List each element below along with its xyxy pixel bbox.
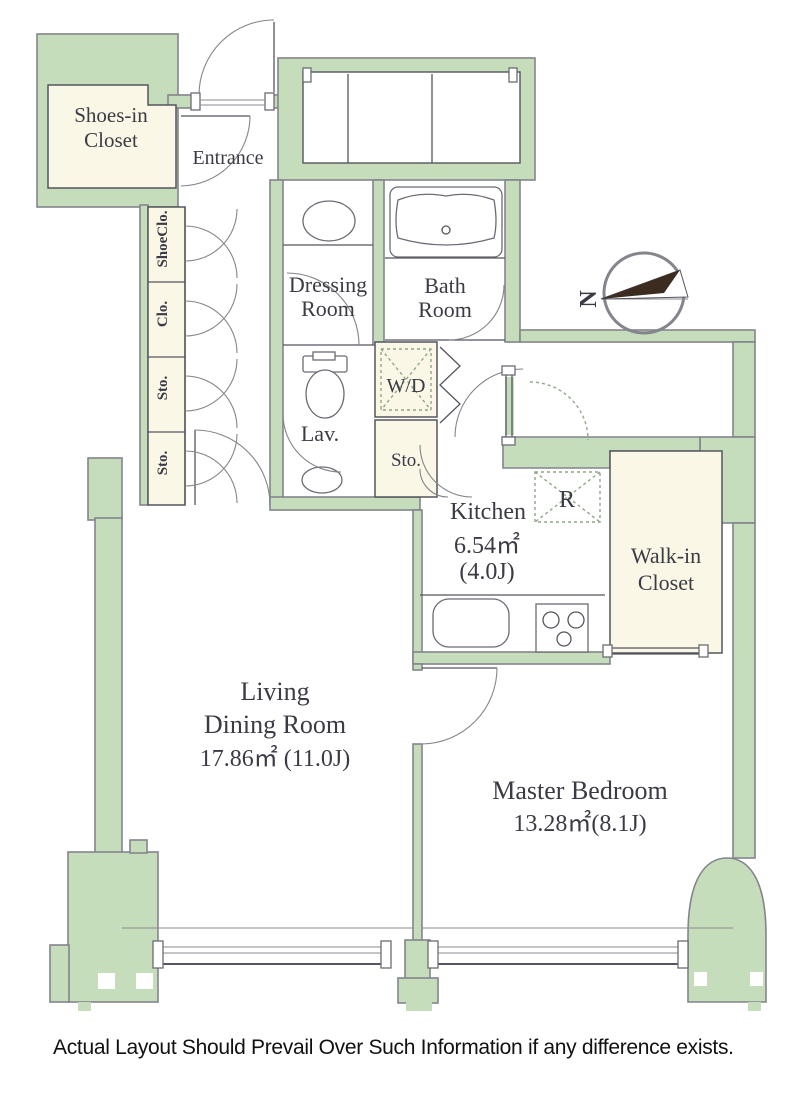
sto-lower-label: Sto. [155,450,171,475]
lav-basin [302,467,342,493]
shoes-closet-label-1: Shoes-in [74,103,148,127]
front-door-swing [199,20,274,95]
window-jamb-2 [381,941,391,968]
sliding-door-jamb-bottom [502,437,515,445]
closet-door-jamb-left [603,645,612,657]
clo-door-swings [185,284,237,353]
wall-ldr-left-corner [88,458,122,520]
hall-door-swing [195,430,270,505]
wall-ldr-top-band [270,497,420,510]
pillar-center-foot-stub [406,1002,432,1011]
pillar-left-foot-stub [78,1002,91,1011]
kitchen-label: Kitchen [450,499,526,525]
dressing-basin [303,201,355,241]
sto-upper-door-swings [185,359,237,428]
wall-kitchen-left [413,510,422,664]
refrigerator-label: R [559,487,575,513]
meter-box-outline [303,72,520,163]
master-corridor-door-swing [530,382,588,440]
pillar-left-notch-2 [136,973,153,989]
shoes-closet-label-2: Closet [84,128,138,152]
lav-label: Lav. [301,421,339,446]
bathtub-inner [396,194,496,245]
master-bedroom-label: Master Bedroom [492,776,667,805]
kitchen-stove [536,604,588,652]
walkin-label-2: Closet [638,570,694,595]
compass-north-label: N [576,290,602,308]
shoeclo-label: ShoeClo. [155,210,171,267]
meter-box-jamb-right [509,68,517,82]
wall-wetcore-left [270,180,283,505]
window-jamb-1 [153,941,163,968]
wall-bedroom-divider [413,744,422,945]
ldr-label-1: Living [240,677,309,706]
sto-hall-label: Sto. [391,450,421,471]
pillar-right-foot-stub [748,1002,761,1011]
sliding-door-jamb-top [502,366,515,375]
pillar-left-stem [130,840,147,853]
walkin-label-1: Walk-in [631,543,701,568]
wall-closet-column-left [140,205,148,505]
wd-bifold-door [440,347,460,423]
kitchen-area-sqm: 6.54㎡ [454,532,520,559]
clo-label: Clo. [155,301,171,328]
wall-dressing-bath-divider [373,180,384,345]
ldr-label-2: Dining Room [204,710,346,739]
wall-bath-right [505,180,520,342]
pillar-center-foot [398,978,438,1003]
floor-plan-page: N Shoes-in Closet Entrance ShoeClo. Clo.… [0,0,807,1108]
meter-box-jamb-left [303,68,311,82]
wall-right-upper [733,342,755,437]
disclaimer-text: Actual Layout Should Prevail Over Such I… [53,1036,793,1060]
toilet-bowl [306,370,344,418]
toilet-handle [313,352,335,360]
entrance-threshold [200,100,265,105]
floor-plan-drawing: N Shoes-in Closet Entrance ShoeClo. Clo.… [0,0,807,1108]
shoeclo-door-swings [185,209,237,278]
pillar-left-step [50,945,69,1002]
entrance-label: Entrance [192,147,263,169]
front-door-jamb-right [265,93,274,110]
sto-upper-label: Sto. [155,375,171,400]
master-bedroom-area: 13.28㎡(8.1J) [513,810,646,837]
bedroom-door-swing [422,668,497,744]
pillar-center-stem [405,940,430,982]
bath-label-2: Room [418,297,472,322]
meter-box [303,68,520,163]
compass: N [576,253,688,333]
bath-label-1: Bath [424,273,466,298]
ldr-area: 17.86㎡ (11.0J) [200,745,350,772]
wall-bedroom-divider-top [413,664,422,670]
pillar-right-notch-2 [750,972,763,986]
wd-label: W/D [387,375,426,397]
window-jamb-3 [428,941,438,968]
kitchen-area-jo: (4.0J) [459,559,514,585]
wall-kitchen-bottom [413,652,610,664]
pillar-right-notch-1 [694,972,707,986]
wall-ldr-left [95,518,122,854]
closet-door-jamb-right [699,645,708,657]
window-jamb-4 [678,941,688,968]
front-door-jamb-left [191,93,200,110]
kitchen-sink [433,599,509,647]
dressing-label-1: Dressing [289,272,367,297]
pillar-left-notch-1 [98,973,115,989]
wall-bedroom-right [733,523,755,858]
dressing-label-2: Room [301,296,355,321]
sto-lower-door-swings [185,434,237,503]
